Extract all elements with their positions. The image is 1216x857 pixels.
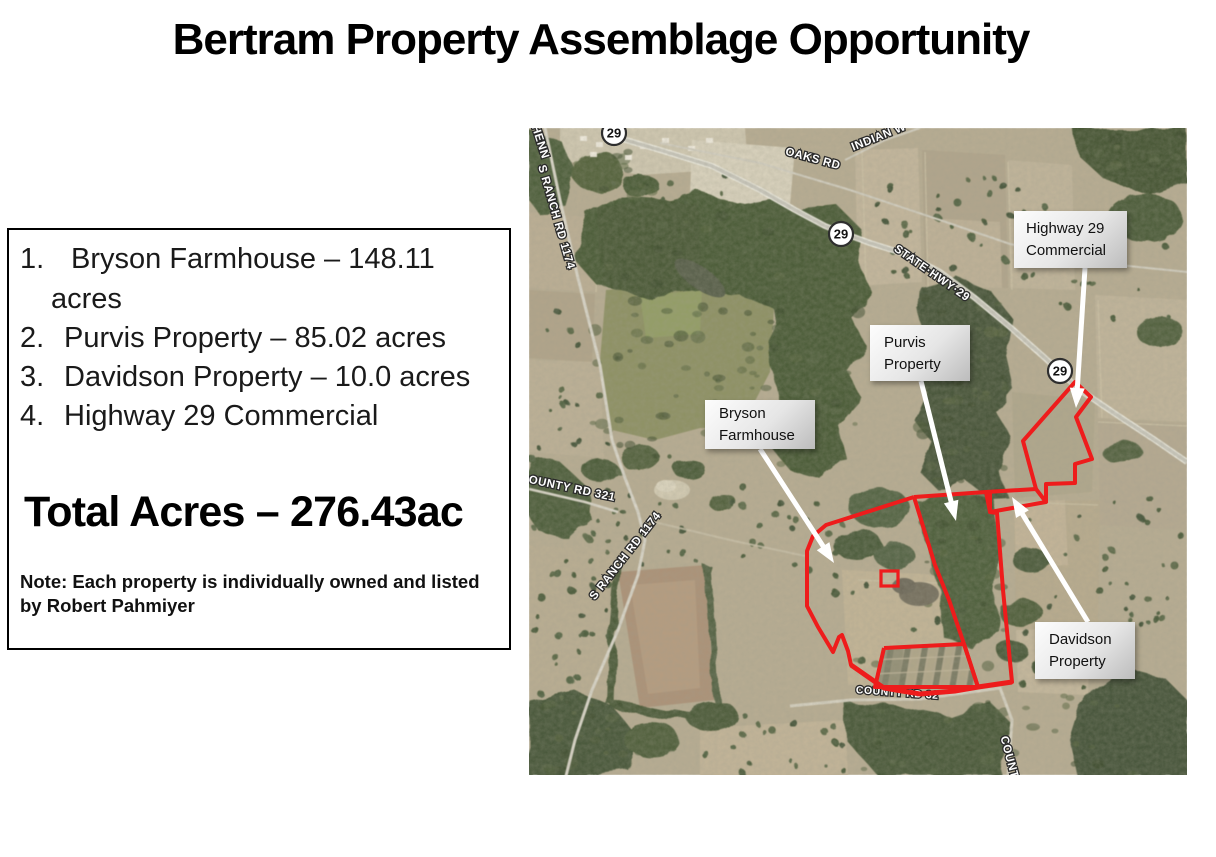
svg-text:29: 29 <box>607 128 621 141</box>
svg-text:29: 29 <box>834 227 848 242</box>
svg-text:29: 29 <box>1053 364 1067 379</box>
